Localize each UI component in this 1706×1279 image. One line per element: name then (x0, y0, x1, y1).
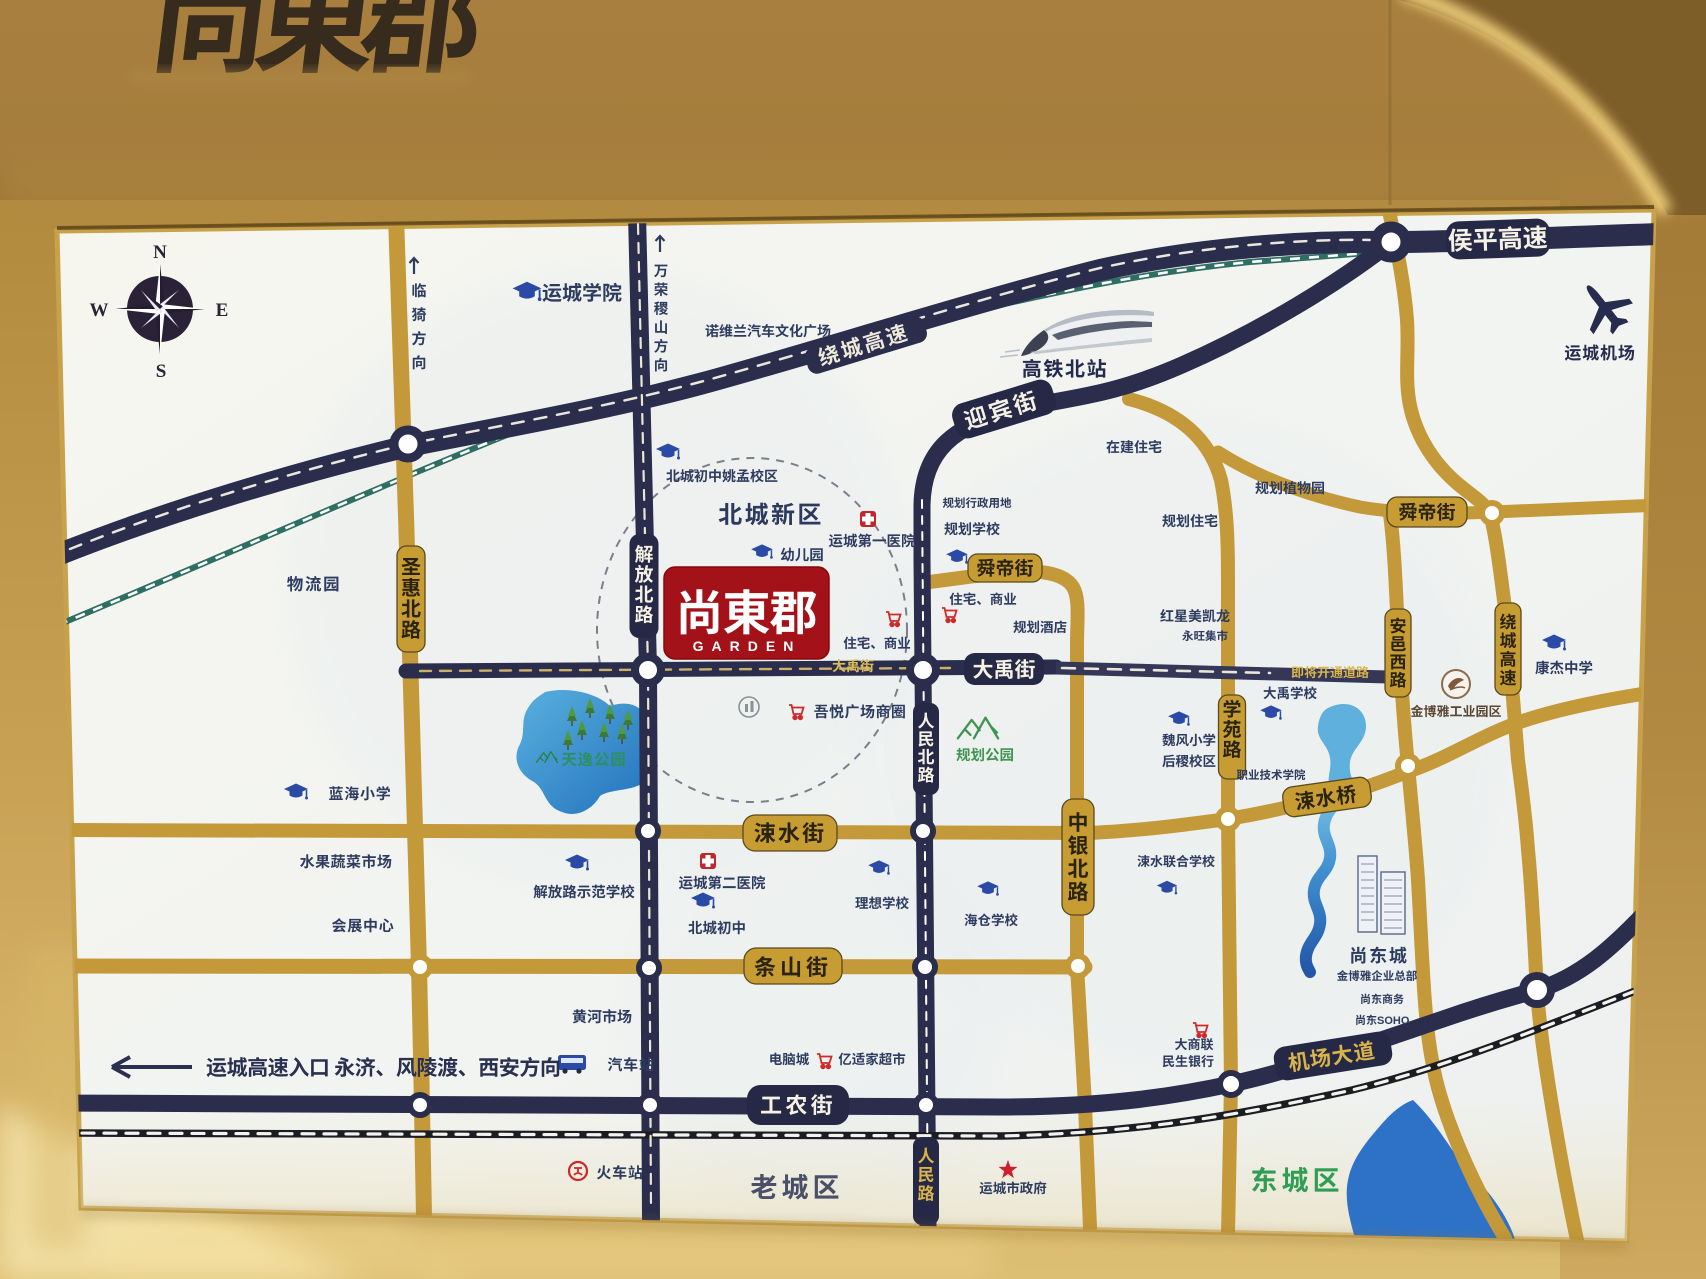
svg-text:S: S (156, 361, 167, 382)
svg-text:GARDEN: GARDEN (693, 638, 802, 654)
svg-text:N: N (153, 242, 167, 263)
svg-text:E: E (216, 300, 229, 321)
svg-text:W: W (90, 300, 109, 321)
svg-text:SOHO: SOHO (1377, 1015, 1410, 1027)
